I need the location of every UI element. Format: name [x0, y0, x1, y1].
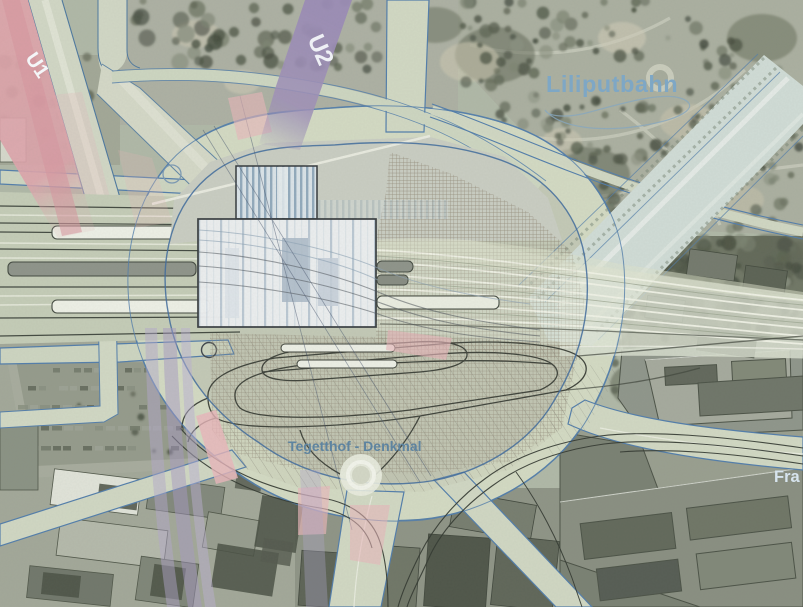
svg-text:Fra: Fra: [774, 468, 801, 486]
svg-text:Liliputbahn: Liliputbahn: [546, 71, 678, 97]
svg-text:Tegetthof - Denkmal: Tegetthof - Denkmal: [288, 438, 422, 454]
